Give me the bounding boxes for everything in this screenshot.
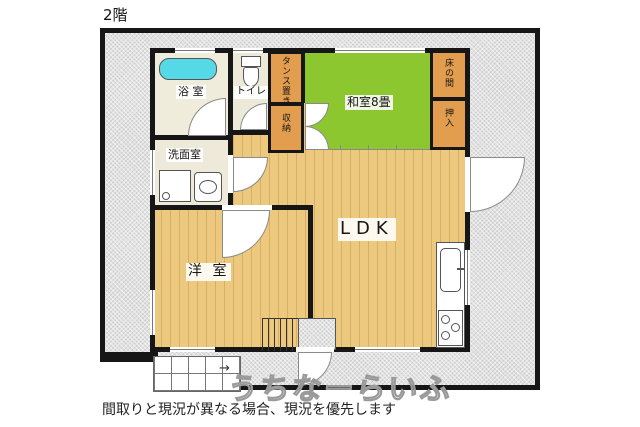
window-tatami [335,48,425,53]
window-westernroom-bottom [170,347,215,352]
frame-bottom-left-cut [95,362,153,396]
window-kitchen-right [465,250,470,305]
toilet-label: トイレ [234,86,268,99]
oshiire-label: 押入 [443,108,452,128]
site-watermark: うちなーらいふ [226,364,453,408]
stair-landing [298,318,336,350]
toilet-bowl-icon [243,67,259,87]
washer-drain-icon [162,192,170,200]
frame-bottom-left-wall [100,352,158,362]
stove-burner-icon [441,315,450,324]
window-washroom-left [150,150,155,195]
window-westernroom-left [150,290,155,335]
kitchen-sink-icon [440,248,461,292]
washroom-label: 洗面室 [166,148,203,162]
boundary-tick [340,145,341,150]
bath-label: 浴 室 [176,85,206,99]
window-bath [175,48,215,53]
window-toilet [233,48,263,53]
stove-burner-icon [451,323,460,332]
tokonoma-label: 床の間 [443,58,452,88]
vanity-basin-icon [199,180,217,194]
wall-toilet-bottom [228,130,273,135]
window-ldk-bottom [355,347,420,352]
floor-number-label: 2階 [103,4,128,25]
toilet-tank-icon [241,56,261,67]
stove-burner-icon [441,331,450,340]
boundary-tick [396,145,397,150]
ldk-label: LDK [338,218,396,241]
japanese-room-label: 和室8畳 [345,95,393,110]
floor-plan-page: 2階 → [0,0,640,427]
storage-label: 収納 [280,113,289,133]
western-room-label: 洋 室 [186,263,231,281]
tansu-space-label: タンス置き [280,56,289,106]
bathtub-icon [159,58,217,80]
indoor-stairs [262,318,298,351]
boundary-tick [368,145,369,150]
